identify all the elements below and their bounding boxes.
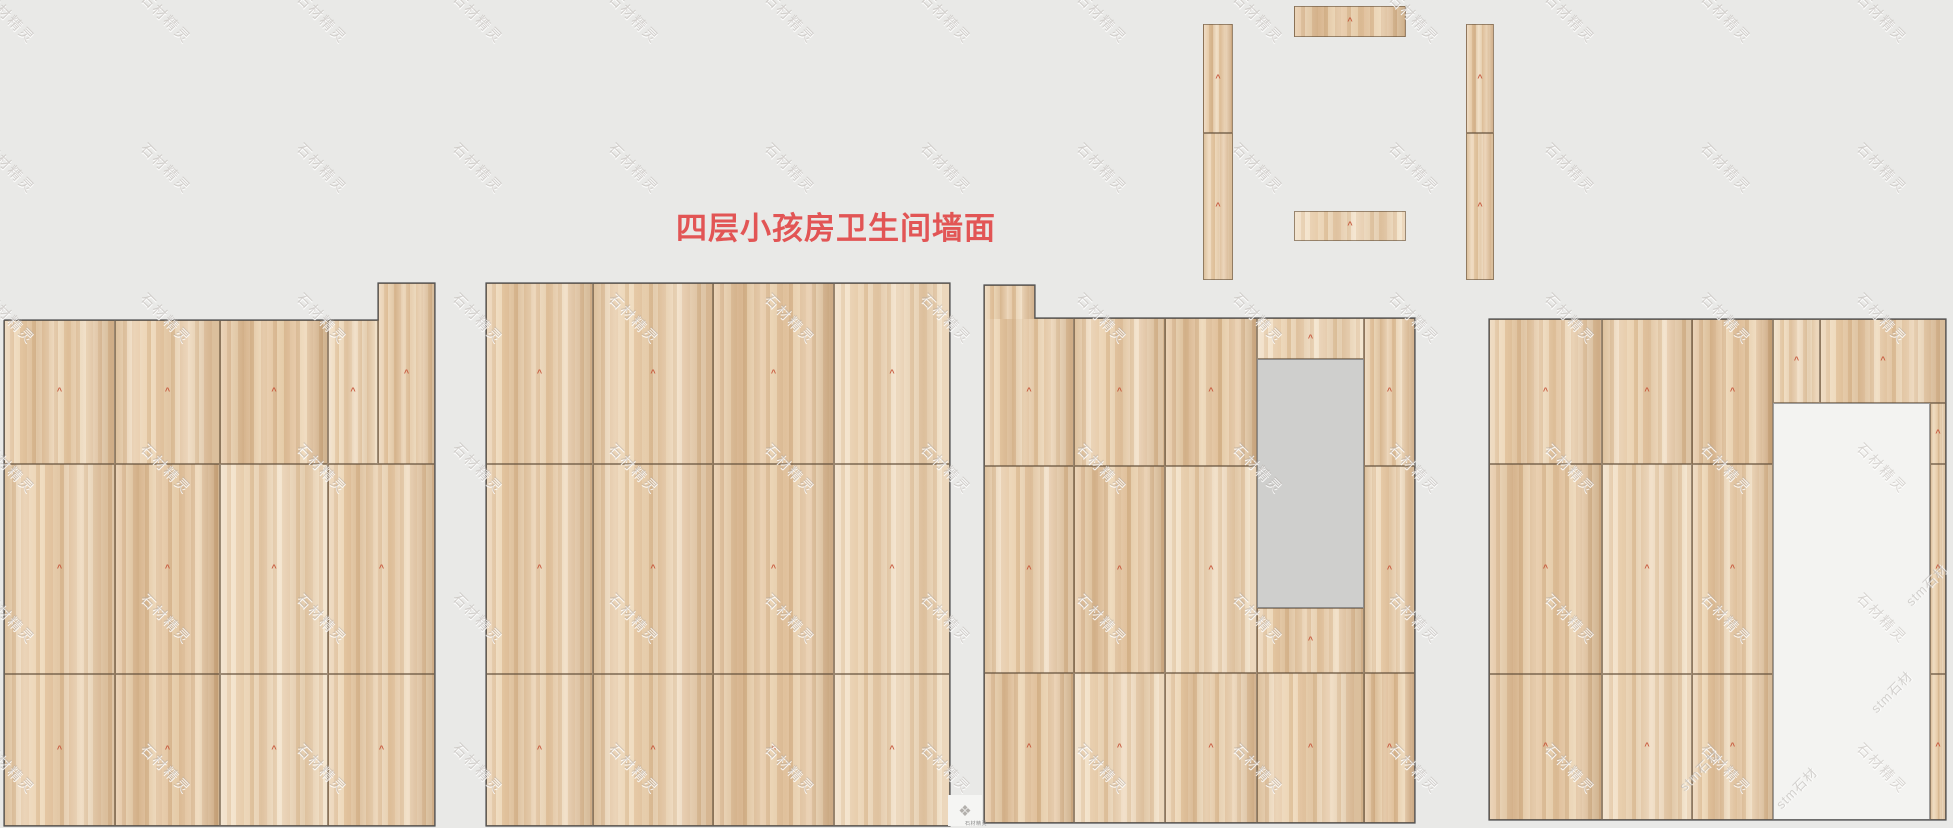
- watermark-text: 石材精灵: [448, 0, 507, 48]
- tile-center-mark: ^: [537, 564, 542, 573]
- stone-tile[interactable]: ^: [984, 673, 1074, 823]
- stone-tile[interactable]: ^: [834, 283, 950, 464]
- stone-tile[interactable]: ^: [486, 283, 593, 464]
- watermark-text: 石材精灵: [1540, 138, 1599, 197]
- stone-tile[interactable]: ^: [1074, 466, 1165, 673]
- stone-tile[interactable]: ^: [1203, 24, 1233, 133]
- tile-center-mark: ^: [165, 745, 170, 754]
- stone-tile[interactable]: ^: [115, 674, 220, 826]
- stone-tile[interactable]: ^: [713, 464, 834, 674]
- stone-tile[interactable]: ^: [1930, 674, 1946, 820]
- tile-center-mark: ^: [379, 745, 384, 754]
- watermark-stm-text: stm石材: [1866, 666, 1916, 716]
- tile-center-mark: ^: [1880, 356, 1885, 365]
- tile-center-mark: ^: [1794, 356, 1799, 365]
- watermark-text: 石材精灵: [1072, 0, 1131, 48]
- watermark-text: 石材精灵: [1852, 138, 1911, 197]
- tile-center-mark: ^: [1215, 202, 1220, 211]
- watermark-text: 石材精灵: [292, 138, 351, 197]
- stone-tile[interactable]: ^: [4, 320, 115, 464]
- tile-center-mark: ^: [771, 369, 776, 378]
- page-title: 四层小孩房卫生间墙面: [676, 203, 996, 248]
- tile-center-mark: ^: [1026, 743, 1031, 752]
- stone-tile[interactable]: ^: [1074, 318, 1165, 466]
- stone-tile[interactable]: ^: [1602, 319, 1692, 464]
- tile-center-mark: ^: [889, 369, 894, 378]
- stone-tile[interactable]: ^: [1257, 318, 1364, 359]
- watermark-text: 石材精灵: [1228, 138, 1287, 197]
- stone-tile[interactable]: ^: [220, 320, 328, 464]
- tile-center-mark: ^: [1644, 742, 1649, 751]
- tile-center-mark: ^: [889, 564, 894, 573]
- tile-center-mark: ^: [1387, 565, 1392, 574]
- tile-center-mark: ^: [1208, 387, 1213, 396]
- stone-tile[interactable]: ^: [220, 674, 328, 826]
- watermark-text: 石材精灵: [1852, 0, 1911, 48]
- tile-center-mark: ^: [1347, 221, 1352, 230]
- stone-tile[interactable]: ^: [1074, 673, 1165, 823]
- watermark-text: 石材精灵: [1228, 0, 1287, 48]
- stone-tile[interactable]: ^: [1773, 319, 1820, 403]
- tile-center-mark: ^: [889, 745, 894, 754]
- stone-tile[interactable]: ^: [593, 674, 713, 826]
- stone-tile[interactable]: [984, 285, 1035, 319]
- tile-center-mark: ^: [1730, 564, 1735, 573]
- tile-center-mark: ^: [57, 745, 62, 754]
- tile-center-mark: ^: [1477, 74, 1482, 83]
- tile-center-mark: ^: [271, 564, 276, 573]
- stone-tile[interactable]: ^: [1165, 318, 1257, 466]
- tile-center-mark: ^: [1387, 743, 1392, 752]
- watermark-text: 石材精灵: [604, 138, 663, 197]
- stone-tile[interactable]: ^: [115, 464, 220, 674]
- tile-center-mark: ^: [1644, 387, 1649, 396]
- watermark-text: 石材精灵: [0, 138, 40, 197]
- stone-tile[interactable]: ^: [328, 464, 435, 674]
- tile-center-mark: ^: [57, 387, 62, 396]
- tile-center-mark: ^: [1117, 387, 1122, 396]
- watermark-text: 石材精灵: [1540, 0, 1599, 48]
- stone-tile[interactable]: ^: [1466, 133, 1494, 280]
- tile-center-mark: ^: [1347, 17, 1352, 26]
- tile-center-mark: ^: [1387, 387, 1392, 396]
- stone-tile[interactable]: ^: [1165, 466, 1257, 673]
- stone-tile[interactable]: ^: [1364, 318, 1415, 466]
- stone-tile[interactable]: ^: [984, 318, 1074, 466]
- stone-tile[interactable]: ^: [593, 283, 713, 464]
- tile-center-mark: ^: [1117, 565, 1122, 574]
- tile-center-mark: ^: [165, 387, 170, 396]
- watermark-text: 石材精灵: [0, 0, 40, 48]
- stone-tile[interactable]: ^: [1692, 319, 1773, 464]
- tile-center-mark: ^: [1308, 636, 1313, 645]
- watermark-text: 石材精灵: [760, 0, 819, 48]
- stone-tile[interactable]: ^: [834, 674, 950, 826]
- tile-center-mark: ^: [404, 369, 409, 378]
- stone-tile[interactable]: ^: [1257, 673, 1364, 823]
- tile-center-mark: ^: [1477, 202, 1482, 211]
- tile-center-mark: ^: [1026, 387, 1031, 396]
- footer-micro-text: 石材精灵: [946, 820, 1006, 827]
- stone-tile[interactable]: ^: [1602, 464, 1692, 674]
- watermark-text: 石材精灵: [916, 138, 975, 197]
- tile-center-mark: ^: [1935, 742, 1940, 751]
- stone-tile[interactable]: ^: [1489, 674, 1602, 820]
- tile-center-mark: ^: [379, 564, 384, 573]
- tile-center-mark: ^: [1208, 565, 1213, 574]
- tile-center-mark: ^: [1215, 74, 1220, 83]
- stone-tile[interactable]: ^: [1930, 403, 1946, 464]
- tile-center-mark: ^: [1730, 742, 1735, 751]
- brand-logo-icon: ❖: [958, 802, 971, 820]
- watermark-text: 石材精灵: [1696, 138, 1755, 197]
- watermark-text: 石材精灵: [1852, 588, 1911, 647]
- watermark-text: 石材精灵: [448, 138, 507, 197]
- stone-tile[interactable]: ^: [486, 674, 593, 826]
- white-opening-cutout: [1773, 403, 1930, 820]
- stone-tile[interactable]: ^: [1165, 673, 1257, 823]
- watermark-text: 石材精灵: [760, 138, 819, 197]
- stone-tile[interactable]: ^: [220, 464, 328, 674]
- watermark-text: 石材精灵: [1852, 738, 1911, 797]
- stage[interactable]: ^^^^^^^^^^^^^^^^^^^^^^^^^^^^^^^^^^^^^^^^…: [0, 0, 1953, 828]
- stone-tile[interactable]: ^: [1820, 319, 1946, 403]
- watermark-text: 石材精灵: [136, 138, 195, 197]
- stone-tile[interactable]: ^: [1257, 608, 1364, 673]
- tile-center-mark: ^: [350, 387, 355, 396]
- stone-tile[interactable]: ^: [713, 283, 834, 464]
- tile-center-mark: ^: [1730, 387, 1735, 396]
- watermark-text: 石材精灵: [136, 0, 195, 48]
- stone-tile[interactable]: ^: [1489, 464, 1602, 674]
- tile-center-mark: ^: [771, 745, 776, 754]
- tile-center-mark: ^: [1308, 334, 1313, 343]
- stone-tile[interactable]: ^: [4, 674, 115, 826]
- tile-center-mark: ^: [57, 564, 62, 573]
- tile-center-mark: ^: [1543, 387, 1548, 396]
- stone-tile[interactable]: ^: [1692, 464, 1773, 674]
- watermark-text: 石材精灵: [1072, 138, 1131, 197]
- stone-tile[interactable]: ^: [328, 674, 435, 826]
- stone-tile[interactable]: ^: [713, 674, 834, 826]
- stone-tile[interactable]: ^: [1602, 674, 1692, 820]
- tile-center-mark: ^: [537, 745, 542, 754]
- tile-center-mark: ^: [650, 745, 655, 754]
- stone-tile[interactable]: ^: [1294, 6, 1406, 37]
- tile-center-mark: ^: [537, 369, 542, 378]
- stone-tile[interactable]: ^: [984, 466, 1074, 673]
- watermark-text: 石材精灵: [916, 0, 975, 48]
- tile-center-mark: ^: [1644, 564, 1649, 573]
- tile-center-mark: ^: [271, 745, 276, 754]
- watermark-stm-text: stm石材: [1771, 762, 1821, 812]
- tile-center-mark: ^: [1026, 565, 1031, 574]
- stone-tile[interactable]: ^: [1364, 673, 1415, 823]
- tile-center-mark: ^: [1935, 429, 1940, 438]
- stone-tile[interactable]: ^: [115, 320, 220, 464]
- stone-tile[interactable]: ^: [1930, 464, 1946, 674]
- stone-tile[interactable]: ^: [834, 464, 950, 674]
- stone-tile[interactable]: ^: [1203, 133, 1233, 280]
- tile-center-mark: ^: [271, 387, 276, 396]
- tile-center-mark: ^: [1935, 564, 1940, 573]
- stone-tile[interactable]: ^: [1294, 211, 1406, 241]
- stone-tile[interactable]: ^: [1692, 674, 1773, 820]
- tile-center-mark: ^: [1543, 742, 1548, 751]
- tile-center-mark: ^: [1543, 564, 1548, 573]
- tile-center-mark: ^: [650, 369, 655, 378]
- watermark-text: 石材精灵: [1696, 0, 1755, 48]
- watermark-text: 石材精灵: [1384, 138, 1443, 197]
- watermark-text: 石材精灵: [1852, 438, 1911, 497]
- tile-center-mark: ^: [771, 564, 776, 573]
- stone-tile[interactable]: ^: [486, 464, 593, 674]
- stone-tile[interactable]: ^: [1489, 319, 1602, 464]
- tile-center-mark: ^: [650, 564, 655, 573]
- watermark-text: 石材精灵: [292, 0, 351, 48]
- tile-center-mark: ^: [165, 564, 170, 573]
- stone-tile[interactable]: ^: [378, 283, 435, 464]
- gray-opening-cutout: [1257, 359, 1364, 608]
- tile-center-mark: ^: [1308, 743, 1313, 752]
- tile-center-mark: ^: [1208, 743, 1213, 752]
- stone-tile[interactable]: ^: [593, 464, 713, 674]
- stone-tile[interactable]: ^: [1364, 466, 1415, 673]
- stone-tile[interactable]: ^: [328, 320, 378, 464]
- watermark-text: 石材精灵: [604, 0, 663, 48]
- stone-tile[interactable]: ^: [4, 464, 115, 674]
- stone-tile[interactable]: ^: [1466, 24, 1494, 133]
- tile-center-mark: ^: [1117, 743, 1122, 752]
